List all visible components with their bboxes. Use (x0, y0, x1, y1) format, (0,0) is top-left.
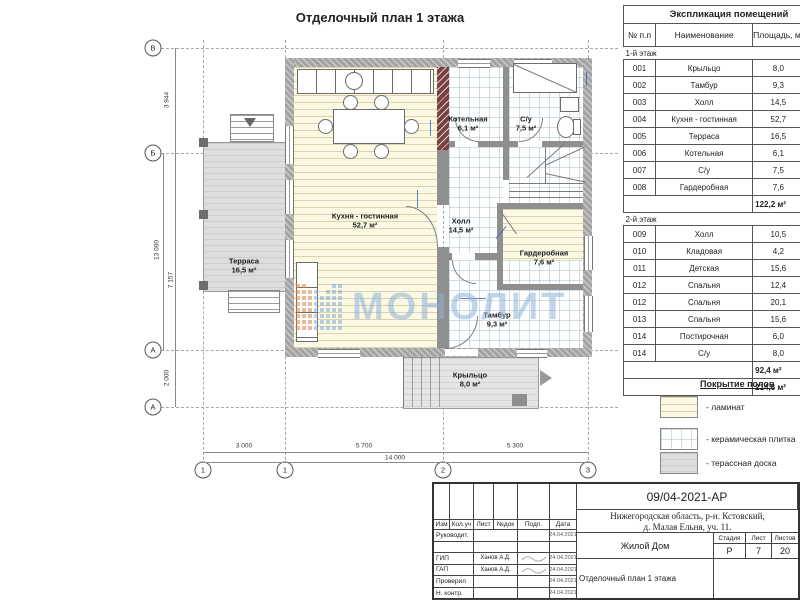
porch-steps (403, 357, 443, 407)
window (285, 240, 294, 278)
revision-header: Подп. (518, 519, 550, 530)
room-label: Холл14,5 м² (449, 217, 474, 236)
stamp-line (493, 484, 494, 519)
revision-header: Лист (474, 519, 494, 530)
dimension-label: 5 300 (507, 443, 523, 450)
drawing-sheet: Отделочный план 1 этажа ВБАА1123 3 94413… (0, 0, 800, 600)
table-row: 007С/у7,5 (624, 162, 800, 179)
stamp-role: ГИП (434, 553, 474, 565)
document-number: 09/04-2021-АР (577, 484, 798, 510)
dimension-annotation (460, 298, 486, 299)
room-area: 6,1 м² (448, 124, 487, 133)
stamp-line (473, 484, 474, 519)
room-label: Гардеробная7,6 м² (520, 249, 569, 268)
table-row: 011Детская15,6 (624, 260, 800, 277)
table-cell: 6,0 (753, 328, 800, 345)
revision-header: №док (494, 519, 518, 530)
wall-stub (449, 141, 455, 147)
table-row: 008Гардеробная7,6 (624, 179, 800, 196)
org-cell (714, 559, 798, 598)
table-cell: 15,6 (753, 260, 800, 277)
dimension-label: 3 944 (164, 92, 171, 108)
table-cell: 7,5 (753, 162, 800, 179)
table-cell: С/у (656, 162, 753, 179)
stamp-name: Ханов А.Д. (474, 565, 518, 577)
axis-marker: А (145, 342, 162, 359)
table-row: 003Холл14,5 (624, 94, 800, 111)
axis-line (161, 407, 618, 408)
window (584, 296, 593, 332)
project-address: Нижегородская область, р-н. Кстовский, д… (577, 510, 798, 533)
legend-label: - терассная доска (706, 458, 777, 468)
stamp-date: 24.04.2021 (550, 588, 577, 600)
table-cell: 012 (624, 294, 656, 311)
table-row: 014С/у8,0 (624, 345, 800, 362)
window (285, 126, 294, 164)
level-mark-icon (244, 118, 256, 127)
bathtub (513, 63, 577, 93)
stamp-line (517, 484, 518, 519)
table-cell: 007 (624, 162, 656, 179)
table-cell: 8,0 (753, 60, 800, 77)
table-cell: 7,6 (753, 179, 800, 196)
section-row: 1-й этаж (624, 47, 800, 60)
sheet-title: Отделочный план 1 этажа (577, 559, 714, 598)
stamp-role: Руководит. (434, 530, 474, 542)
column-header: № п.п (624, 24, 656, 47)
wall-kitchen-hall-a (437, 150, 449, 205)
table-cell: 014 (624, 345, 656, 362)
chair (374, 95, 389, 110)
title-block: ИзмКол.учЛист№докПодп.ДатаРуководит.24.0… (432, 482, 800, 600)
chair (343, 95, 358, 110)
room-name: Котельная (448, 115, 487, 124)
table-cell: Тамбур (656, 77, 753, 94)
table-row: 006Котельная6,1 (624, 145, 800, 162)
room-area: 7,6 м² (520, 258, 569, 267)
object-name: Жилой Дом (577, 533, 714, 559)
table-cell: 003 (624, 94, 656, 111)
dimension-label: 5 700 (356, 443, 372, 450)
stamp-date: 24.04.2021 (550, 576, 577, 588)
signature-cell (518, 576, 550, 588)
window (584, 236, 593, 270)
washbasin (560, 97, 579, 112)
terrace-door (285, 180, 294, 214)
dimension-label: 13 000 (154, 240, 161, 260)
chair (374, 144, 389, 159)
wall-tambour-b (475, 253, 503, 260)
table-cell: 12,4 (753, 277, 800, 294)
room-name: Холл (449, 217, 474, 226)
floor-total: 92,4 м² (753, 362, 800, 379)
sofa (296, 262, 318, 342)
table-cell: Спальня (656, 277, 753, 294)
stamp-role: Проверил (434, 576, 474, 588)
table-row: 009Холл10,5 (624, 226, 800, 243)
table-cell: Гардеробная (656, 179, 753, 196)
table-cell: Холл (656, 226, 753, 243)
stamp-name (474, 530, 518, 542)
signature-icon (521, 554, 547, 562)
room-name: Терраса (229, 257, 259, 266)
window (517, 349, 547, 358)
wall-wardrobe-left (497, 203, 503, 290)
porch-post (512, 394, 527, 406)
address-line2: д. Малая Ельня, уч. 11. (577, 522, 798, 533)
table-row: 013Спальня15,6 (624, 311, 800, 328)
room-name: Гардеробная (520, 249, 569, 258)
terrace-post (199, 138, 208, 147)
wall-tambour-a (437, 253, 452, 260)
table-cell: 4,2 (753, 243, 800, 260)
table-cell: Спальня (656, 294, 753, 311)
axis-marker: Б (145, 145, 162, 162)
stamp-line (449, 484, 450, 519)
stage-label: Стадия (714, 533, 746, 544)
room-label: Кухня - гостинная52,7 м² (332, 212, 398, 231)
wall-wardrobe-top (497, 203, 583, 209)
room-label: Терраса16,5 м² (229, 257, 259, 276)
table-cell: С/у (656, 345, 753, 362)
room-label: Тамбур9,3 м² (483, 311, 510, 330)
axis-marker: 1 (277, 462, 294, 479)
legend-swatch (660, 428, 698, 450)
dimension-annotation (430, 120, 431, 136)
stamp-name (474, 588, 518, 600)
entrance-arrow-icon (540, 370, 552, 386)
table-cell: Котельная (656, 145, 753, 162)
table-cell: Терраса (656, 128, 753, 145)
legend-swatch (660, 396, 698, 418)
entrance-door-gap (445, 349, 478, 356)
table-row: 002Тамбур9,3 (624, 77, 800, 94)
axis-marker: В (145, 40, 162, 57)
window (318, 349, 360, 358)
table-row: 004Кухня - гостинная52,7 (624, 111, 800, 128)
signature-cell (518, 565, 550, 577)
table-cell: 008 (624, 179, 656, 196)
table-cell: 005 (624, 128, 656, 145)
table-cell: 011 (624, 260, 656, 277)
table-cell: 6,1 (753, 145, 800, 162)
legend-item: - ламинат (660, 396, 745, 418)
window (458, 59, 490, 68)
legend-item: - терассная доска (660, 452, 777, 474)
section-row: 2-й этаж (624, 213, 800, 226)
table-row: 012Спальня20,1 (624, 294, 800, 311)
sheet-label: Лист (746, 533, 772, 544)
table-row: 005Терраса16,5 (624, 128, 800, 145)
table-cell: 012 (624, 277, 656, 294)
table-cell: 8,0 (753, 345, 800, 362)
table-cell: Крыльцо (656, 60, 753, 77)
table-cell: 001 (624, 60, 656, 77)
table-cell: 013 (624, 311, 656, 328)
table-cell: 009 (624, 226, 656, 243)
signature-cell (518, 542, 550, 554)
room-area: 14,5 м² (449, 226, 474, 235)
dimension-annotation (417, 190, 418, 208)
stamp-name (474, 576, 518, 588)
legend-item: - керамическая плитка (660, 428, 796, 450)
axis-marker: 2 (435, 462, 452, 479)
stamp-role (434, 542, 474, 554)
signature-cell (518, 530, 550, 542)
room-label: С/у7,5 м² (516, 115, 537, 134)
legend-swatch (660, 452, 698, 474)
room-label: Котельная6,1 м² (448, 115, 487, 134)
table-cell: 52,7 (753, 111, 800, 128)
table-cell: 9,3 (753, 77, 800, 94)
dimension-label: 7 157 (168, 272, 175, 288)
legend-title: Покрытие полов (700, 379, 774, 389)
revision-header: Изм (434, 519, 450, 530)
stamp-name: Ханов А.Д. (474, 553, 518, 565)
dimension-annotation (586, 72, 587, 86)
toilet-tank (573, 119, 581, 135)
stamp-name (474, 542, 518, 554)
room-area: 9,3 м² (483, 320, 510, 329)
table-cell: 14,5 (753, 94, 800, 111)
axis-marker: 1 (195, 462, 212, 479)
dimension-label: 14 000 (385, 455, 405, 462)
legend-label: - керамическая плитка (706, 434, 796, 444)
page-title: Отделочный план 1 этажа (285, 10, 475, 25)
room-name: Тамбур (483, 311, 510, 320)
table-cell: Кухня - гостинная (656, 111, 753, 128)
table-cell: 004 (624, 111, 656, 128)
table-cell (624, 196, 753, 213)
stamp-role: Н. контр. (434, 588, 474, 600)
table-cell (624, 362, 753, 379)
dimension-line (203, 452, 588, 453)
room-name: Кухня - гостинная (332, 212, 398, 221)
room-area: 8,0 м² (453, 380, 487, 389)
table-cell: 15,6 (753, 311, 800, 328)
chair (318, 119, 333, 134)
room-area: 52,7 м² (332, 221, 398, 230)
room-name: Крыльцо (453, 371, 487, 380)
table-cell: Детская (656, 260, 753, 277)
revision-header: Дата (550, 519, 577, 530)
stamp-line (549, 484, 550, 519)
dimension-line (175, 48, 176, 407)
dimension-label: 2 000 (164, 370, 171, 386)
stamp-date (550, 542, 577, 554)
room-name: С/у (516, 115, 537, 124)
kitchen-sink (345, 72, 363, 90)
column-header: Наименование (656, 24, 753, 47)
terrace-post (199, 281, 208, 290)
dimension-line (203, 462, 588, 463)
axis-line (161, 48, 618, 49)
table-cell: 20,1 (753, 294, 800, 311)
table-row: 001Крыльцо8,0 (624, 60, 800, 77)
stamp-date: 24.04.2021 (550, 530, 577, 542)
stamp-date: 24.04.2021 (550, 565, 577, 577)
terrace-steps-bottom (228, 290, 280, 313)
signature-cell (518, 588, 550, 600)
stamp-date: 24.04.2021 (550, 553, 577, 565)
stage-value: Р (714, 544, 746, 559)
chair (343, 144, 358, 159)
table-cell: 10,5 (753, 226, 800, 243)
axis-marker: А (145, 399, 162, 416)
table-cell: Постирочная (656, 328, 753, 345)
axis-marker: 3 (580, 462, 597, 479)
staircase (509, 147, 583, 203)
room-label: Крыльцо8,0 м² (453, 371, 487, 390)
table-cell: 002 (624, 77, 656, 94)
sheet-value: 7 (746, 544, 772, 559)
table-row: 014Постирочная6,0 (624, 328, 800, 345)
floor-total: 122,2 м² (753, 196, 800, 213)
dimension-line (163, 153, 164, 350)
signature-cell (518, 553, 550, 565)
wall-boiler-bath (503, 67, 509, 147)
chair (404, 119, 419, 134)
signature-icon (521, 566, 547, 574)
table-row: 010Кладовая4,2 (624, 243, 800, 260)
wall-wardrobe-bottom (497, 284, 583, 290)
room-area: 7,5 м² (516, 124, 537, 133)
stamp-role: ГАП (434, 565, 474, 577)
dimension-label: 3 000 (236, 443, 252, 450)
table-cell: Кладовая (656, 243, 753, 260)
table-cell: 014 (624, 328, 656, 345)
table-cell: Холл (656, 94, 753, 111)
table-cell: Спальня (656, 311, 753, 328)
room-area: 16,5 м² (229, 266, 259, 275)
table-cell: 010 (624, 243, 656, 260)
legend-label: - ламинат (706, 402, 745, 412)
table-cell: 006 (624, 145, 656, 162)
dining-table (333, 109, 405, 144)
revision-header: Кол.уч (450, 519, 474, 530)
address-line1: Нижегородская область, р-н. Кстовский, (577, 511, 798, 522)
terrace-post (199, 210, 208, 219)
sheets-label: Листов (772, 533, 798, 544)
explication-table: Экспликация помещений№ п.пНаименованиеПл… (623, 5, 800, 396)
kitchen-counter (297, 69, 434, 94)
vent-shaft-wall (437, 67, 449, 150)
sheets-value: 20 (772, 544, 798, 559)
explication-title: Экспликация помещений (624, 6, 800, 24)
table-row: 012Спальня12,4 (624, 277, 800, 294)
column-header: Площадь, м² (753, 24, 800, 47)
table-cell: 16,5 (753, 128, 800, 145)
